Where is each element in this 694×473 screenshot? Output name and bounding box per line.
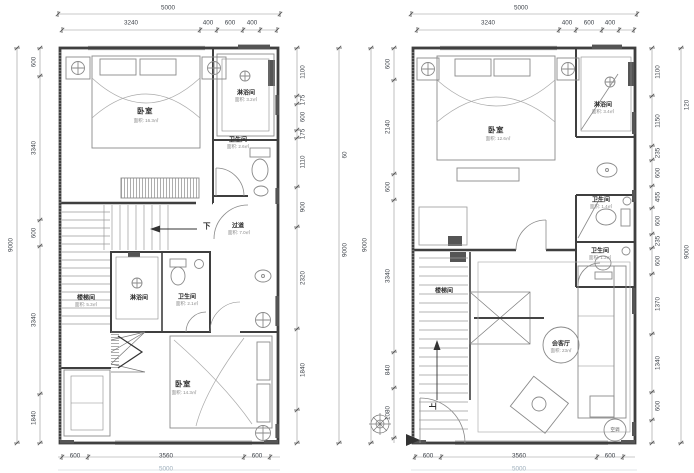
dim-label: 600: [70, 453, 81, 460]
right-plan-stairs: [419, 207, 544, 429]
room-area-label: 面积: 14.3㎡: [172, 390, 197, 396]
left-plan-furniture: [64, 54, 274, 441]
wardrobe-icon: [121, 178, 199, 198]
bed-icon: [437, 56, 555, 181]
left-plan-dimension-lines: [17, 14, 339, 470]
dim-label: 3560: [512, 453, 526, 460]
dim-label: 1840: [300, 363, 307, 377]
dim-label: 900: [300, 202, 307, 213]
room-label-wc: 卫生间: [591, 246, 609, 255]
sink-icon: [255, 270, 271, 282]
floor-plan-screenshot: 5000 3240 400 600 400 9000 600 3340 600 …: [0, 0, 694, 473]
room-area-label: 面积: 7.0㎡: [228, 230, 250, 236]
room-label-shower: 淋浴间: [237, 88, 255, 97]
dim-label: 2140: [385, 120, 392, 134]
dim-label: 600: [655, 216, 662, 227]
dim-label: 455: [655, 192, 662, 203]
dim-label: 600: [655, 401, 662, 412]
dim-label: 5000: [512, 466, 526, 473]
dim-label: 1110: [300, 155, 307, 168]
dim-label: 3340: [31, 313, 38, 327]
dim-label: 5000: [159, 466, 173, 473]
dim-label: 600: [423, 453, 434, 460]
stairs-down-arrow: [150, 226, 197, 233]
dim-label: 600: [252, 453, 263, 460]
stairs-up-label: 上: [428, 402, 439, 410]
room-label-bedroom: 卧室: [175, 379, 191, 390]
room-label-shower: 淋浴间: [130, 293, 148, 302]
room-area-label: 面积: 23㎡: [550, 348, 571, 354]
room-label-bedroom: 卧室: [488, 125, 504, 136]
room-label-corridor: 过道: [232, 221, 244, 230]
dim-label: 9000: [8, 238, 15, 252]
dim-label: 9000: [684, 245, 691, 259]
dim-label: 235: [655, 148, 662, 159]
room-label-wc: 卫生间: [178, 292, 196, 301]
dim-label: 400: [247, 20, 258, 27]
dim-label: 600: [605, 453, 616, 460]
right-plan-doors: [406, 74, 618, 446]
dim-label: 3240: [481, 20, 495, 27]
dim-label: 600: [655, 256, 662, 267]
dim-label: 2320: [300, 271, 307, 285]
dim-label: 1340: [655, 356, 662, 370]
stairs-down-label: 下: [203, 221, 211, 232]
dim-label: 400: [203, 20, 214, 27]
dim-label: 600: [655, 168, 662, 179]
ac-label: 空调: [611, 427, 620, 433]
right-plan-dimension-ticks: [368, 11, 684, 460]
room-area-label: 面积: 2.6㎡: [227, 144, 249, 150]
dim-label: 600: [385, 59, 392, 70]
dim-label: 9000: [362, 238, 369, 252]
room-label-stair: 楼梯间: [77, 293, 95, 302]
left-plan-walls: [60, 48, 278, 443]
bed-icon: [92, 56, 200, 148]
nightstand-icon: [66, 57, 226, 79]
room-area-label: 面积: 12.6㎡: [486, 136, 511, 142]
dim-label: 3340: [385, 269, 392, 283]
dim-label: 400: [605, 20, 616, 27]
dim-label: 3560: [159, 453, 173, 460]
shower-icon: [116, 257, 158, 319]
dim-label: 1840: [31, 411, 38, 425]
dim-label: 1100: [655, 65, 662, 79]
dim-label: 1370: [655, 297, 662, 311]
dim-label: 600: [225, 20, 236, 27]
room-label-living: 会客厅: [552, 339, 570, 348]
room-area-label: 面积: 5.3㎡: [75, 302, 97, 308]
room-label-wc: 卫生间: [592, 195, 610, 204]
dim-label: 600: [300, 112, 307, 123]
stair-rail-cross: [470, 292, 544, 344]
dim-label: 3240: [124, 20, 138, 27]
room-label-stair: 楼梯间: [435, 286, 453, 295]
dim-label: 600: [584, 20, 595, 27]
room-area-label: 面积: 3.2㎡: [235, 97, 257, 103]
sofa-icon: [64, 370, 110, 436]
room-label-shower: 淋浴间: [594, 100, 612, 109]
dim-label: 400: [562, 20, 573, 27]
dim-label: 3340: [31, 141, 38, 155]
shower-icon: [581, 57, 631, 131]
room-area-label: 面积: 3.4㎡: [592, 109, 614, 115]
dim-label: 5000: [161, 5, 175, 12]
room-area-label: 面积: 1.2㎡: [589, 255, 611, 261]
side-table-icon: [590, 396, 614, 417]
room-area-label: 面积: 16.3㎡: [134, 118, 159, 124]
sofa-icon: [578, 266, 626, 418]
dim-label: 1150: [655, 114, 662, 128]
dim-label: 600: [31, 57, 38, 68]
dim-label: 175: [300, 129, 307, 140]
room-label-wc: 卫生间: [229, 135, 247, 144]
sink-icon: [254, 186, 268, 196]
lounge-chair-icon: [510, 376, 568, 433]
plan-linework: [0, 0, 694, 473]
dim-label: 5000: [514, 5, 528, 12]
room-area-label: 面积: 1.4㎡: [590, 204, 612, 210]
dim-label: 1080: [385, 406, 392, 420]
dim-label: 600: [31, 228, 38, 239]
dim-label: 9000: [342, 243, 349, 257]
dim-label: 235: [655, 236, 662, 247]
dim-label: 1100: [300, 65, 307, 79]
dim-label: 175: [300, 95, 307, 106]
toilet-icon: [250, 148, 270, 181]
dim-label: 120: [684, 100, 691, 111]
dim-label: 840: [385, 365, 392, 376]
sink-icon: [597, 163, 617, 177]
stairs-up-arrow: [434, 340, 441, 400]
room-area-label: 面积: 2.1㎡: [176, 301, 198, 307]
dim-label: 60: [342, 151, 349, 158]
toilet-icon: [170, 259, 204, 285]
room-label-bedroom: 卧室: [137, 106, 153, 117]
dim-label: 600: [385, 182, 392, 193]
